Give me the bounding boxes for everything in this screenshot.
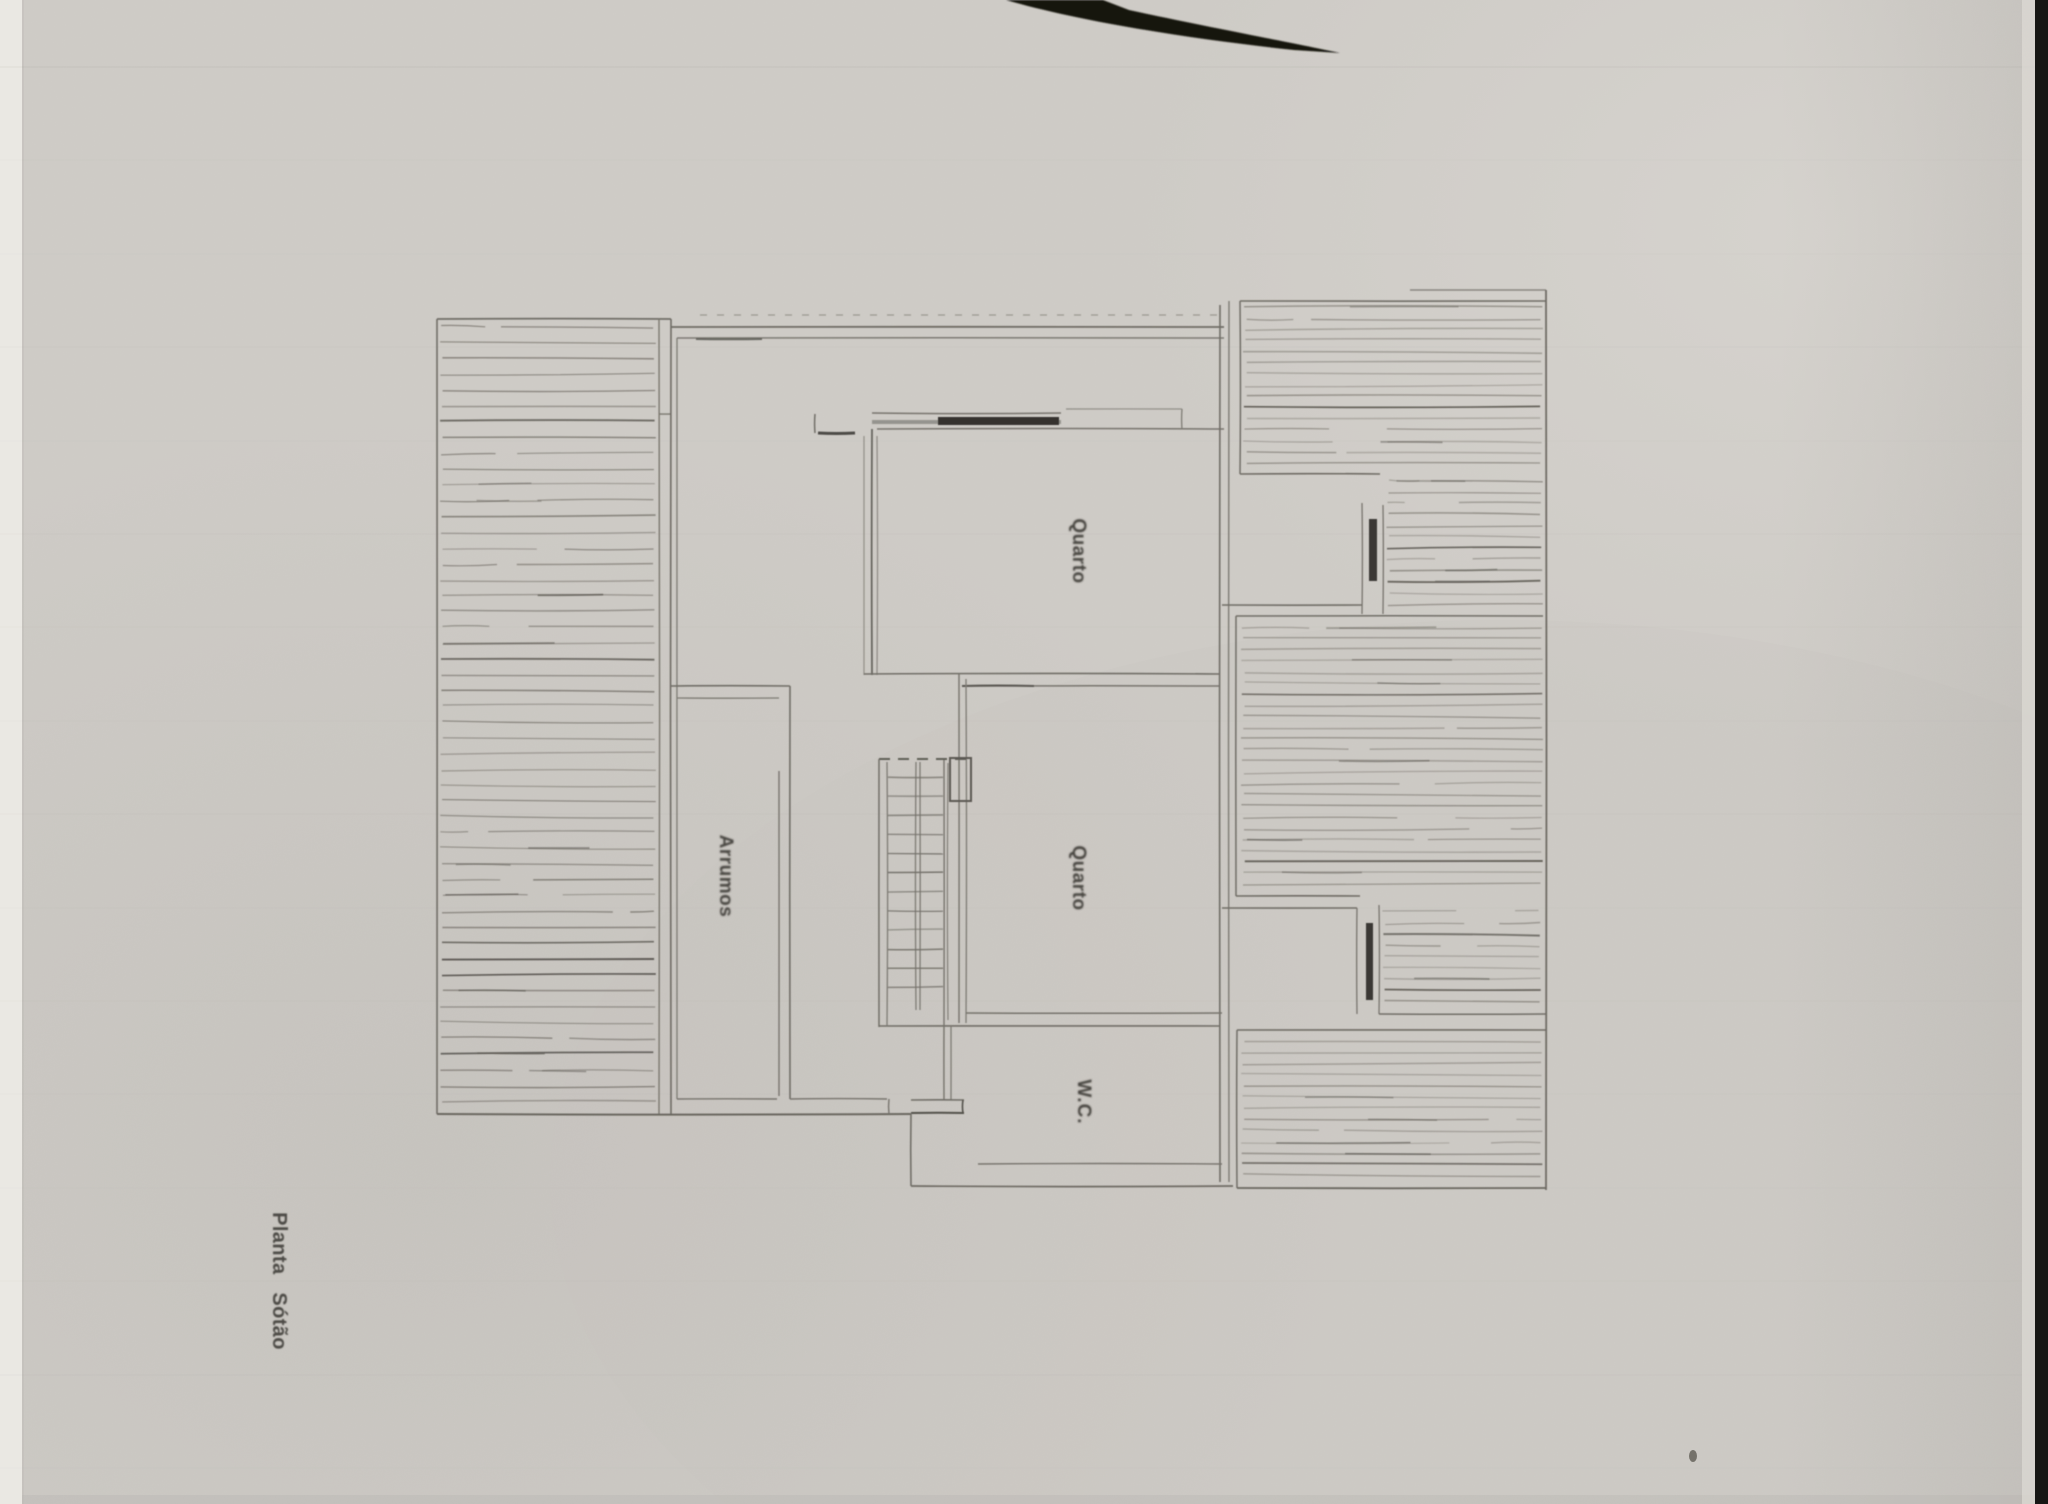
svg-text:Arrumos: Arrumos [715, 835, 736, 918]
svg-text:W.C.: W.C. [1073, 1079, 1094, 1124]
svg-text:Planta Sótão: Planta Sótão [268, 1212, 290, 1350]
svg-text:Quarto: Quarto [1068, 845, 1089, 910]
svg-text:Quarto: Quarto [1068, 518, 1089, 583]
